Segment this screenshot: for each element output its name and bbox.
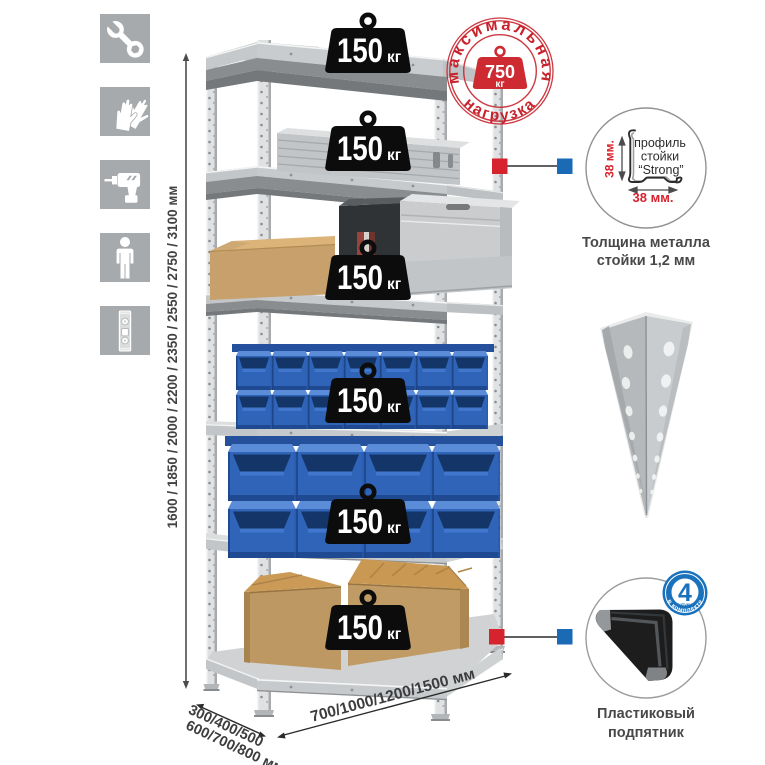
- svg-text:150: 150: [337, 382, 383, 420]
- svg-text:подпятник: подпятник: [608, 725, 685, 741]
- svg-text:Пластиковый: Пластиковый: [597, 706, 695, 722]
- svg-text:“Strong”: “Strong”: [638, 163, 683, 177]
- svg-text:150: 150: [337, 32, 383, 70]
- svg-text:кг: кг: [387, 399, 402, 416]
- svg-text:1600 / 1850 / 2000 / 2200 / 23: 1600 / 1850 / 2000 / 2200 / 2350 / 2550 …: [165, 186, 180, 529]
- svg-text:кг: кг: [387, 626, 402, 643]
- svg-text:профиль: профиль: [634, 136, 686, 150]
- svg-text:кг: кг: [495, 79, 504, 90]
- svg-text:стойки: стойки: [641, 150, 679, 164]
- svg-text:150: 150: [337, 130, 383, 168]
- svg-text:150: 150: [337, 503, 383, 541]
- svg-text:кг: кг: [387, 49, 402, 66]
- svg-text:кг: кг: [387, 276, 402, 293]
- svg-text:кг: кг: [387, 147, 402, 164]
- svg-text:стойки 1,2 мм: стойки 1,2 мм: [597, 253, 696, 269]
- svg-text:150: 150: [337, 259, 383, 297]
- svg-text:Толщина металла: Толщина металла: [582, 235, 711, 251]
- svg-text:150: 150: [337, 609, 383, 647]
- svg-text:кг: кг: [387, 520, 402, 537]
- svg-text:38 мм.: 38 мм.: [603, 140, 617, 178]
- svg-text:38 мм.: 38 мм.: [633, 190, 674, 205]
